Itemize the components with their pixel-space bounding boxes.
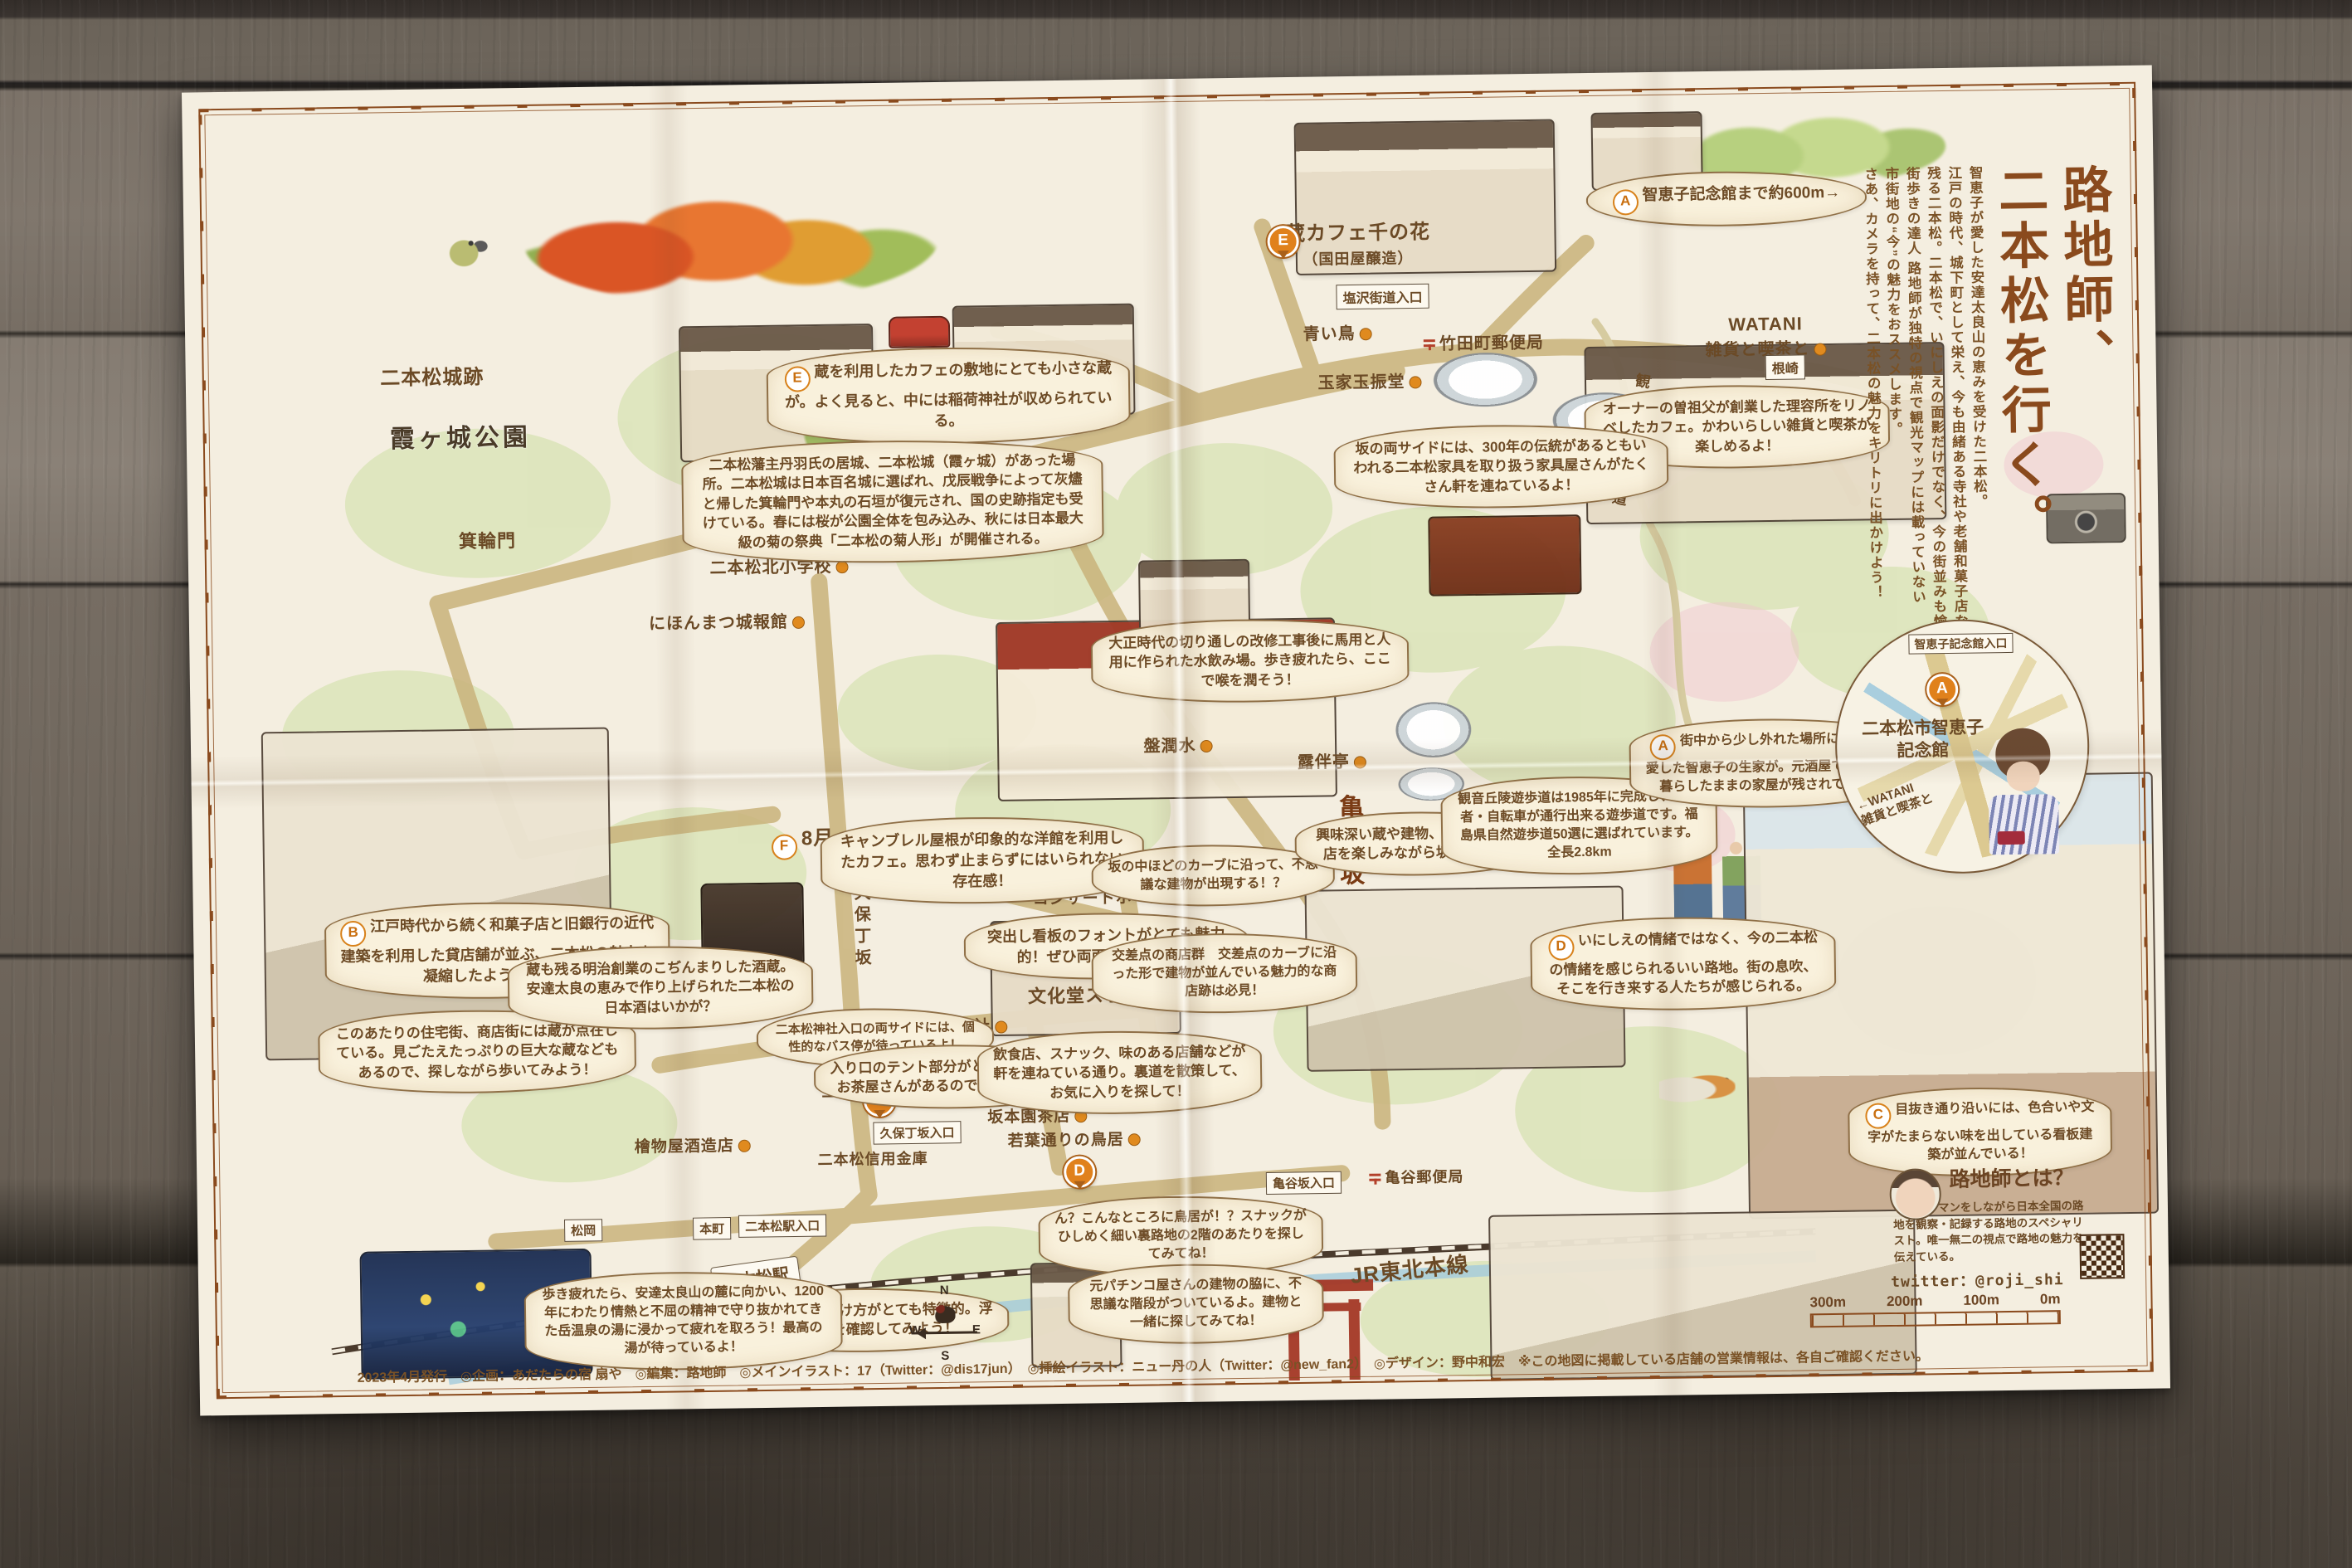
scale-label-0m: 0m (2040, 1291, 2061, 1307)
intro-column-2: 江戸の時代、城下町として栄え、今も由緒ある寺社や老舗和菓子店などが (1945, 166, 1967, 659)
label-kunitaya: （国田屋醸造） (1303, 246, 1413, 270)
chieko-memorial-inset-map: 智恵子記念館入口 A 二本松市智恵子 記念館 ←WATANI 雑貨と喫茶と (1833, 618, 2091, 875)
scale-label-200m: 200m (1887, 1293, 1923, 1311)
intro-column-1: 智恵子が愛した安達太良山の恵みを受けた二本松。 (1967, 165, 1986, 509)
rojishi-heading: 路地師とは？ (1949, 1161, 2138, 1193)
scale-label-300m: 300m (1809, 1294, 1846, 1312)
woman-face (2006, 761, 2039, 791)
bubble-furniture-street: 坂の両サイドには、300年の伝統があるともいわれる二本松家具を取り扱う家具屋さん… (1333, 423, 1668, 511)
bubble-castle-history: 二本松藩主丹羽氏の居城、二本松城（霞ヶ城）があった場所。二本松城は日本百名城に選… (681, 438, 1104, 566)
bubble-600m: A智恵子記念館まで約600m→ (1586, 169, 1867, 228)
bubble-gambrel-cafe: キャンブレル屋根が印象的な洋館を利用したカフェ。思わず止まらずにはいられない存在… (820, 815, 1144, 906)
intro-text: 智恵子が愛した安達太良山の恵みを受けた二本松。江戸の時代、城下町として栄え、今も… (1856, 165, 1989, 648)
inset-entrance-label: 智恵子記念館入口 (1908, 633, 2013, 655)
label-banjunsui: 盤潤水 (1143, 732, 1212, 757)
bubble-sakagura: 蔵も残る明治創業のこぢんまりした酒蔵。安達太良の恵みで作り上げられた二本松の日本… (507, 944, 813, 1031)
location-dot (1354, 757, 1366, 769)
location-dot (1200, 740, 1213, 752)
inset-museum-name-line1: 二本松市智恵子 (1862, 716, 1984, 740)
bubble-snack-street: 飲食店、スナック、味のある店舗などが軒を連ねている通り。裏道を散策して、お気に入… (976, 1029, 1262, 1116)
label-matsuoka: 松岡 (564, 1219, 602, 1242)
map-title-line1: 路地師、 (2054, 163, 2116, 645)
label-shinkin-bank: 二本松信用金庫 (817, 1147, 928, 1170)
compass-arrow (913, 1331, 977, 1334)
label-kubocho-entrance: 久保丁坂入口 (873, 1121, 961, 1144)
intro-column-3: 残る二本松。二本松で、いにしえの面影だけでなく、今の街並みも愉しもう！ (1925, 166, 1946, 689)
spot-badge-b: B (340, 921, 366, 947)
map-title-line2: 二本松を行く。 (1990, 164, 2053, 646)
location-dot (792, 616, 805, 629)
label-aoi-tori: 青い鳥 (1303, 319, 1371, 344)
intro-column-6: さあ、カメラを持って、二本松の魅力をキリトリに出かけよう！ (1862, 167, 1882, 600)
woman-kimono (1989, 794, 2059, 855)
title-block: 路地師、 二本松を行く。 智恵子が愛した安達太良山の恵みを受けた二本松。江戸の時… (1844, 163, 2116, 648)
location-dot (1409, 377, 1421, 389)
label-shiozawa-entrance: 塩沢街道入口 (1336, 284, 1429, 310)
label-kameya-post-office: 亀谷郵便局 (1369, 1165, 1463, 1188)
illustrated-map-paper: 二本松城跡霞ヶ城公園箕輪門二本松北小学校にほんまつ城報館蔵カフェ千の花（国田屋醸… (182, 65, 2170, 1415)
label-takeda-post-office: 竹田町郵便局 (1424, 329, 1544, 354)
label-nezaki: 根崎 (1765, 354, 1805, 380)
pin-e: E (1267, 226, 1299, 258)
label-johokan: にほんまつ城報館 (649, 608, 805, 635)
spot-badge-e: E (784, 366, 810, 392)
location-dot (1360, 328, 1372, 340)
spot-badge-c: C (1865, 1103, 1891, 1128)
pin-d: D (1064, 1156, 1096, 1188)
label-himonoya-brewery: 檜物屋酒造店 (635, 1133, 751, 1157)
label-rohantei: 露伴亭 (1298, 747, 1366, 772)
spot-badge-a: A (1650, 734, 1676, 760)
location-dot (1814, 343, 1826, 356)
location-dot (995, 1021, 1007, 1034)
bubble-small-kura: E蔵を利用したカフェの敷地にとても小さな蔵が。よく見ると、中には稲荷神社が収めら… (766, 345, 1131, 446)
inset-museum-name-line2: 記念館 (1862, 738, 1984, 762)
rooster-weathervane-icon (933, 1305, 955, 1323)
post-office-icon (1424, 339, 1435, 350)
label-castle-ruins: 二本松城跡 (380, 360, 484, 391)
bubble-crossroads-shops: 交差点の商店群 交差点のカーブに沿った形で建物が並んでいる魅力的な商店跡は必見！ (1091, 932, 1357, 1015)
label-tamaya-gyokushindo: 玉家玉振堂 (1317, 368, 1421, 393)
bubble-water-trough: 大正時代の切り通しの改修工事後に馬用と人用に作られた水飲み場。歩き疲れたら、ここ… (1090, 617, 1409, 705)
photo-of-map-on-wooden-table: 二本松城跡霞ヶ城公園箕輪門二本松北小学校にほんまつ城報館蔵カフェ千の花（国田屋醸… (0, 0, 2352, 1568)
location-dot (835, 561, 848, 573)
label-kasumigajo-park: 霞ヶ城公園 (389, 416, 531, 455)
chieko-woman-illustration (1983, 728, 2064, 861)
post-office-icon (1369, 1173, 1381, 1184)
bubble-dake-onsen: 歩き疲れたら、安達太良山の麓に向かい、1200年にわたり情熱と不屈の精神で守り抜… (523, 1270, 843, 1373)
spot-badge-a: A (1612, 189, 1638, 215)
bubble-pachinko-stairs: 元パチンコ屋さんの建物の脇に、不思議な階段がついているよ。建物と一緒に探してみて… (1068, 1262, 1324, 1346)
location-dot (1128, 1134, 1141, 1147)
bubble-today-alley: Dいにしえの情緒ではなく、今の二本松の情緒を感じられるいい路地。街の息吹、そこを… (1530, 915, 1837, 1012)
label-kameya-entrance: 亀谷坂入口 (1266, 1171, 1342, 1195)
rojishi-profile-block: 路地師とは？ サラリーマンをしながら日本全国の路地を観察・記録する路地のスペシャ… (1889, 1161, 2140, 1292)
compass-rose: N S W E (908, 1283, 981, 1363)
spot-badge-d: D (1548, 934, 1574, 960)
compass-east: E (972, 1322, 981, 1337)
label-wakaba-torii: 若葉通りの鳥居 (1008, 1127, 1141, 1151)
intro-column-4: 街歩きの達人 路地師が独特の視点で観光マップには載っていない (1904, 166, 1925, 604)
scale-labels: 300m200m100m0m (1809, 1291, 2060, 1311)
label-kura-cafe-sennohana: 蔵カフェ千の花 (1285, 215, 1430, 246)
label-jr-tohoku-line: JR東北本線 (1349, 1247, 1470, 1289)
spot-badge-f: F (772, 834, 797, 859)
qr-code (2079, 1234, 2125, 1279)
inset-museum-name: 二本松市智恵子 記念館 (1862, 716, 1984, 763)
map-scale-bar: 300m200m100m0m (1809, 1291, 2061, 1327)
location-dot (738, 1140, 751, 1152)
label-watani: WATANI (1728, 313, 1803, 335)
label-minowa-gate: 箕輪門 (459, 526, 516, 553)
scale-label-100m: 100m (1963, 1292, 1999, 1309)
intro-column-5: 市街地の“今”の魅力をおススメします。 (1882, 167, 1901, 437)
label-station-entrance: 二本松駅入口 (738, 1214, 826, 1237)
compass-north: N (940, 1283, 949, 1298)
label-motomachi: 本町 (693, 1217, 731, 1240)
